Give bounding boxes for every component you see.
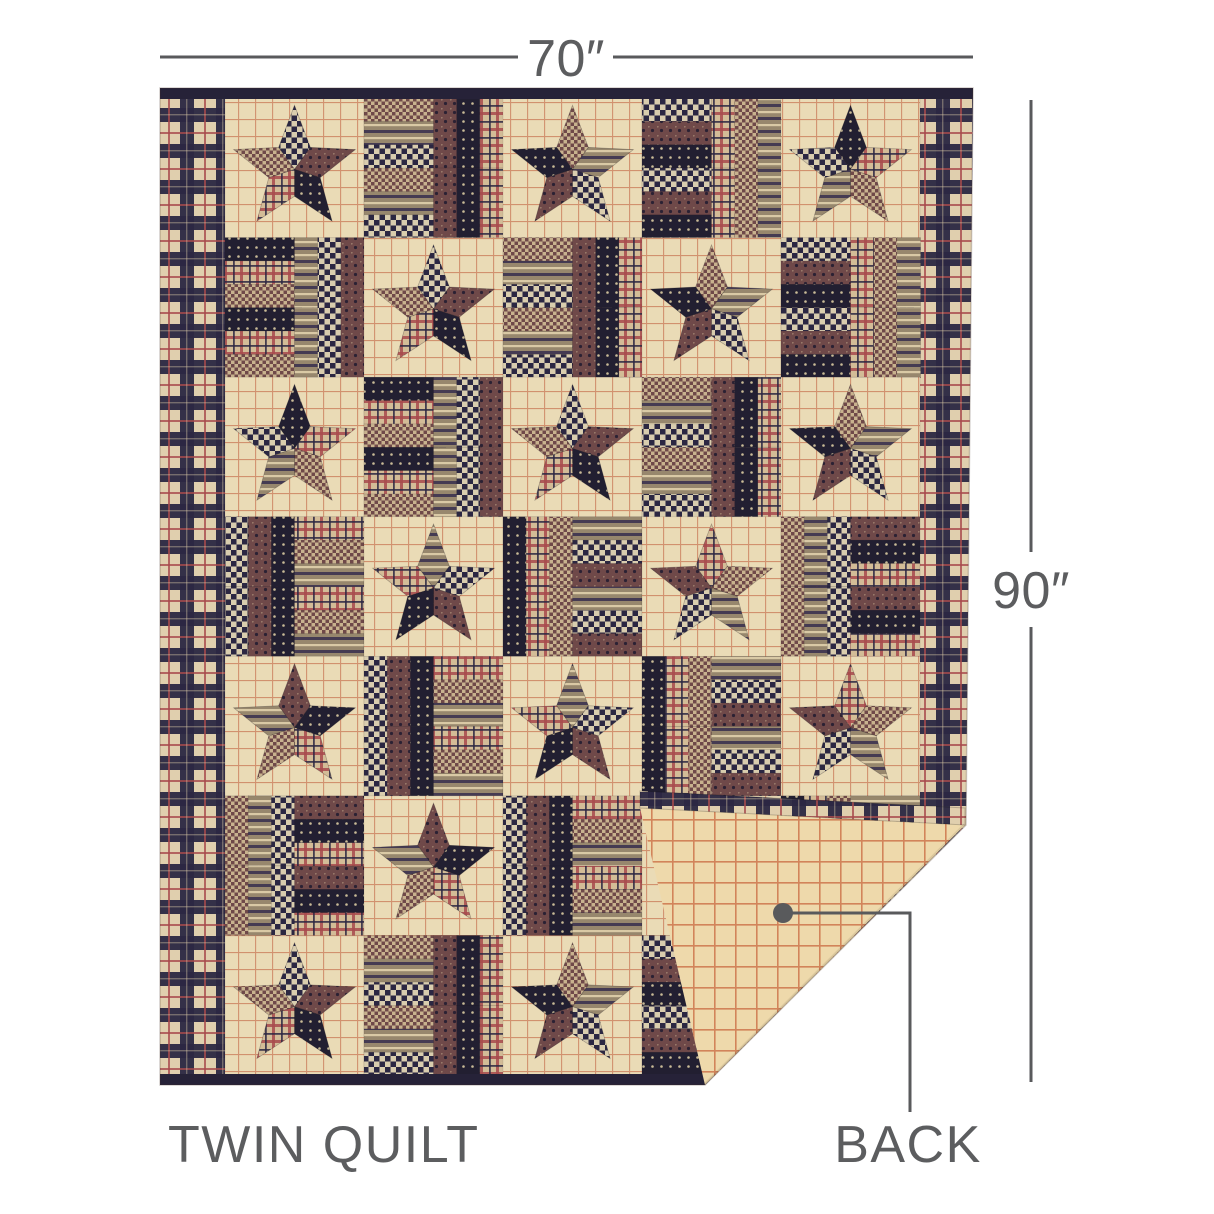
diagram-canvas: 70″ 90″ BACK TWIN QUILT — [0, 0, 1214, 1214]
back-callout-label: BACK — [834, 1116, 982, 1174]
product-dimension-diagram: 70″ 90″ BACK TWIN QUILT — [0, 0, 1214, 1214]
height-dimension: 90″ — [992, 100, 1070, 1082]
quilt-graphic — [160, 88, 973, 1085]
width-dimension-label: 70″ — [527, 30, 605, 88]
width-dimension: 70″ — [160, 30, 973, 88]
product-variant-label: TWIN QUILT — [168, 1116, 480, 1174]
height-dimension-label: 90″ — [992, 562, 1070, 620]
